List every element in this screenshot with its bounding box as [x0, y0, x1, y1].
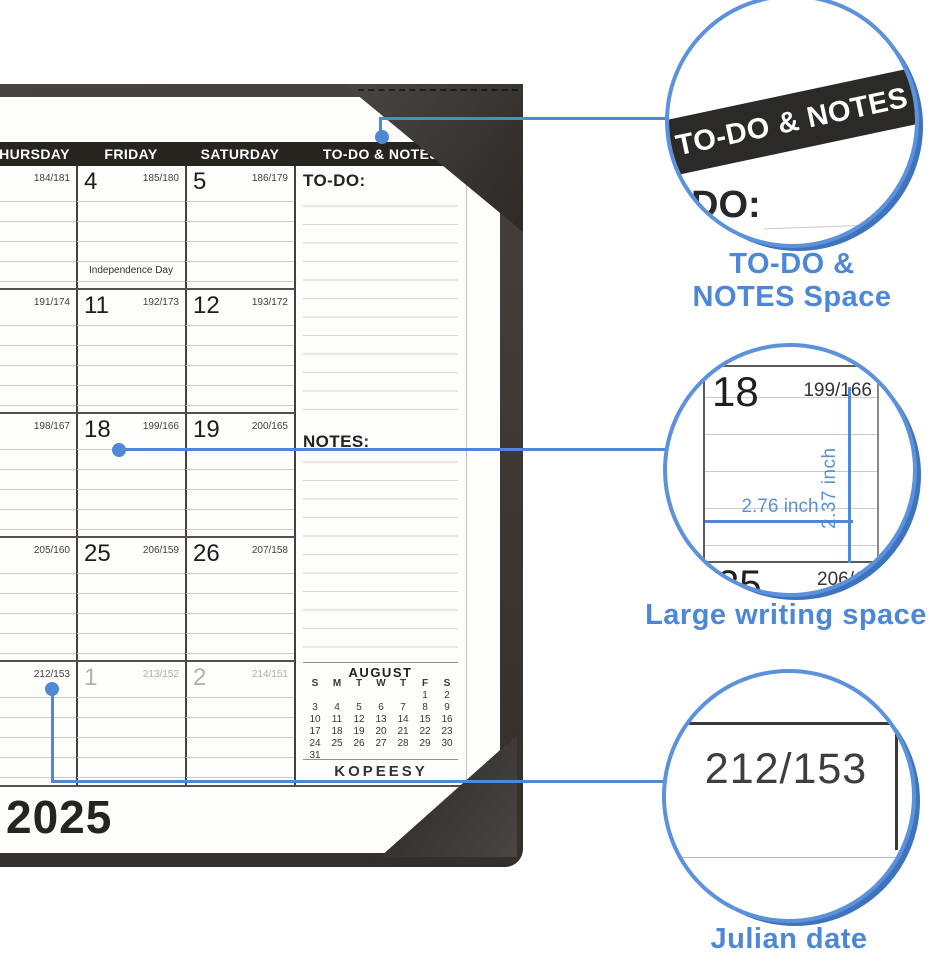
- callout-dot: [375, 130, 389, 144]
- partial-todo-text: DO:: [691, 184, 761, 227]
- mini-month-date: [370, 690, 392, 702]
- mini-month-day-header: W: [370, 678, 392, 690]
- calendar-cell: 5 186/179: [186, 166, 294, 290]
- weekday-header-bar: THURSDAY FRIDAY SATURDAY TO-DO & NOTES: [0, 142, 467, 166]
- mini-month-date: 24: [304, 738, 326, 750]
- mini-month-date: [370, 750, 392, 762]
- ruled-line-fragment: [764, 224, 902, 230]
- mini-month-date: 29: [414, 738, 436, 750]
- mini-month-date: 22: [414, 726, 436, 738]
- caption-writing-space: Large writing space: [640, 599, 932, 632]
- callout-dot: [112, 443, 126, 457]
- height-measure-line: [848, 387, 851, 563]
- callout-line: [51, 780, 668, 783]
- callout-circle-todo: TO-DO & NOTES DO:: [665, 0, 919, 248]
- date-number: 5: [193, 168, 206, 196]
- calendar-cell: 4 185/180 Independence Day: [77, 166, 185, 290]
- width-measure-line: [705, 520, 853, 523]
- mini-month-date: 25: [326, 738, 348, 750]
- calendar-cell: 212/153: [0, 662, 76, 786]
- julian-date: 213/152: [143, 669, 179, 680]
- todo-notes-banner: TO-DO & NOTES: [665, 61, 919, 183]
- mini-month-date: 3: [304, 702, 326, 714]
- brand-name: KOPEESY: [295, 763, 467, 780]
- next-row-julian-fragment: 206/159: [817, 569, 886, 591]
- callout-line: [51, 689, 54, 783]
- julian-date: 205/160: [34, 545, 70, 556]
- mini-month-date: [326, 750, 348, 762]
- calendar-row: 205/160 25 206/159 26 207/158: [0, 538, 295, 662]
- todo-ruled-lines: [303, 188, 458, 410]
- date-number: 19: [193, 416, 220, 444]
- mini-month-date: 26: [348, 738, 370, 750]
- weekday-saturday: SATURDAY: [186, 142, 294, 166]
- mini-month-date: [436, 750, 458, 762]
- date-number: 2: [193, 664, 206, 692]
- calendar-cell-next-month: 2 214/151: [186, 662, 294, 786]
- mini-month-day-header: T: [348, 678, 370, 690]
- mini-month-date: 15: [414, 714, 436, 726]
- todo-notes-column: TO-DO: NOTES: AUGUST SMTWTFS123456789101…: [295, 166, 467, 786]
- mini-month-date: [392, 750, 414, 762]
- weekday-thursday: THURSDAY: [0, 142, 85, 166]
- mini-month-date: 19: [348, 726, 370, 738]
- calendar-cell: 12 193/172: [186, 290, 294, 414]
- mini-month-date: 13: [370, 714, 392, 726]
- calendar-row: 184/181 4 185/180 Independence Day 5 186…: [0, 166, 295, 290]
- date-number: 11: [84, 292, 109, 320]
- julian-date: 214/151: [252, 669, 288, 680]
- mini-month-date: 27: [370, 738, 392, 750]
- product-image-stage: THURSDAY FRIDAY SATURDAY TO-DO & NOTES 1…: [0, 0, 932, 963]
- mini-month-date: 8: [414, 702, 436, 714]
- mini-month-date: [348, 750, 370, 762]
- date-number: 4: [84, 168, 97, 196]
- cell-ruled-lines: [705, 397, 877, 550]
- callout-line: [379, 117, 672, 120]
- mini-month-date: [348, 690, 370, 702]
- mini-month-divider: [303, 662, 458, 663]
- mini-month-date: 6: [370, 702, 392, 714]
- calendar-cell-next-month: 1 213/152: [77, 662, 185, 786]
- callout-circle-writing: 18 199/166 2.37 inch 2.76 inch 25 206/15…: [663, 343, 917, 597]
- holiday-note: Independence Day: [77, 265, 185, 276]
- julian-date: 212/153: [34, 669, 70, 680]
- calendar-cell: 11 192/173: [77, 290, 185, 414]
- callout-dot: [45, 682, 59, 696]
- date-number: 1: [84, 664, 97, 692]
- date-number: 26: [193, 540, 220, 568]
- calendar-row: 198/167 18 199/166 19 200/165: [0, 414, 295, 538]
- mini-month-date: 14: [392, 714, 414, 726]
- mini-month-date: 20: [370, 726, 392, 738]
- mini-month-day-header: S: [436, 678, 458, 690]
- mini-month-date: 11: [326, 714, 348, 726]
- year-label: 2025: [6, 790, 112, 844]
- ruled-line-fragment: [675, 857, 903, 858]
- calendar-cell: 19 200/165: [186, 414, 294, 538]
- julian-date: 200/165: [252, 421, 288, 432]
- mini-month-date: 4: [326, 702, 348, 714]
- mini-month-date: [392, 690, 414, 702]
- cell-border-top: [680, 722, 900, 725]
- calendar-cell: 205/160: [0, 538, 76, 662]
- mini-month-day-header: F: [414, 678, 436, 690]
- mini-month-date: 21: [392, 726, 414, 738]
- mini-month-date: 18: [326, 726, 348, 738]
- date-number: 25: [84, 540, 111, 568]
- mini-month-date: [304, 690, 326, 702]
- mini-month-date: 10: [304, 714, 326, 726]
- weekday-friday: FRIDAY: [77, 142, 185, 166]
- mini-month-day-header: S: [304, 678, 326, 690]
- width-measure-label: 2.76 inch: [705, 496, 855, 518]
- calendar-cell: 198/167: [0, 414, 76, 538]
- caption-todo-line1: TO-DO &: [665, 248, 919, 281]
- julian-date: 186/179: [252, 173, 288, 184]
- calendar-cell: 184/181: [0, 166, 76, 290]
- mini-month-divider: [303, 759, 458, 760]
- mini-month-date: [326, 690, 348, 702]
- zoomed-julian-date: 199/166: [767, 380, 872, 402]
- julian-date: 185/180: [143, 173, 179, 184]
- date-number: 12: [193, 292, 220, 320]
- caption-julian-date: Julian date: [662, 923, 916, 956]
- calendar-row: 191/174 11 192/173 12 193/172: [0, 290, 295, 414]
- calendar-cell: 18 199/166: [77, 414, 185, 538]
- mini-month-date: 9: [436, 702, 458, 714]
- mini-month-date: 7: [392, 702, 414, 714]
- mini-month-date: 12: [348, 714, 370, 726]
- julian-date: 206/159: [143, 545, 179, 556]
- cell-border-right: [877, 365, 879, 563]
- mini-month-date: 2: [436, 690, 458, 702]
- callout-circle-julian: 212/153: [662, 669, 916, 923]
- calendar-cell: 25 206/159: [77, 538, 185, 662]
- mini-month-date: 23: [436, 726, 458, 738]
- mini-month-date: 30: [436, 738, 458, 750]
- mini-month-date: 16: [436, 714, 458, 726]
- julian-date: 207/158: [252, 545, 288, 556]
- caption-todo-line2: NOTES Space: [655, 281, 929, 314]
- corner-stitching: [358, 89, 518, 91]
- julian-date: 193/172: [252, 297, 288, 308]
- mini-month-date: [414, 750, 436, 762]
- next-row-date-fragment: 25: [717, 563, 762, 597]
- mini-month-grid: SMTWTFS123456789101112131415161718192021…: [304, 678, 458, 762]
- cell-border-top: [703, 365, 877, 367]
- mini-month-date: 1: [414, 690, 436, 702]
- mini-month-day-header: M: [326, 678, 348, 690]
- notes-ruled-lines: [303, 444, 458, 648]
- mini-month-day-header: T: [392, 678, 414, 690]
- date-number: 18: [84, 416, 111, 444]
- julian-date: 184/181: [34, 173, 70, 184]
- julian-date: 199/166: [143, 421, 179, 432]
- mini-month-date: 28: [392, 738, 414, 750]
- julian-date: 192/173: [143, 297, 179, 308]
- julian-date: 191/174: [34, 297, 70, 308]
- julian-date: 198/167: [34, 421, 70, 432]
- julian-date-zoomed: 212/153: [686, 745, 886, 794]
- calendar-cell: 191/174: [0, 290, 76, 414]
- mini-month-date: 5: [348, 702, 370, 714]
- calendar-cell: 26 207/158: [186, 538, 294, 662]
- cell-border-right: [895, 722, 898, 850]
- mini-month-date: 31: [304, 750, 326, 762]
- zoomed-date-number: 18: [712, 368, 759, 416]
- calendar-row: 212/153 1 213/152 2 214/151: [0, 662, 295, 786]
- mini-month-date: 17: [304, 726, 326, 738]
- callout-line: [117, 448, 670, 451]
